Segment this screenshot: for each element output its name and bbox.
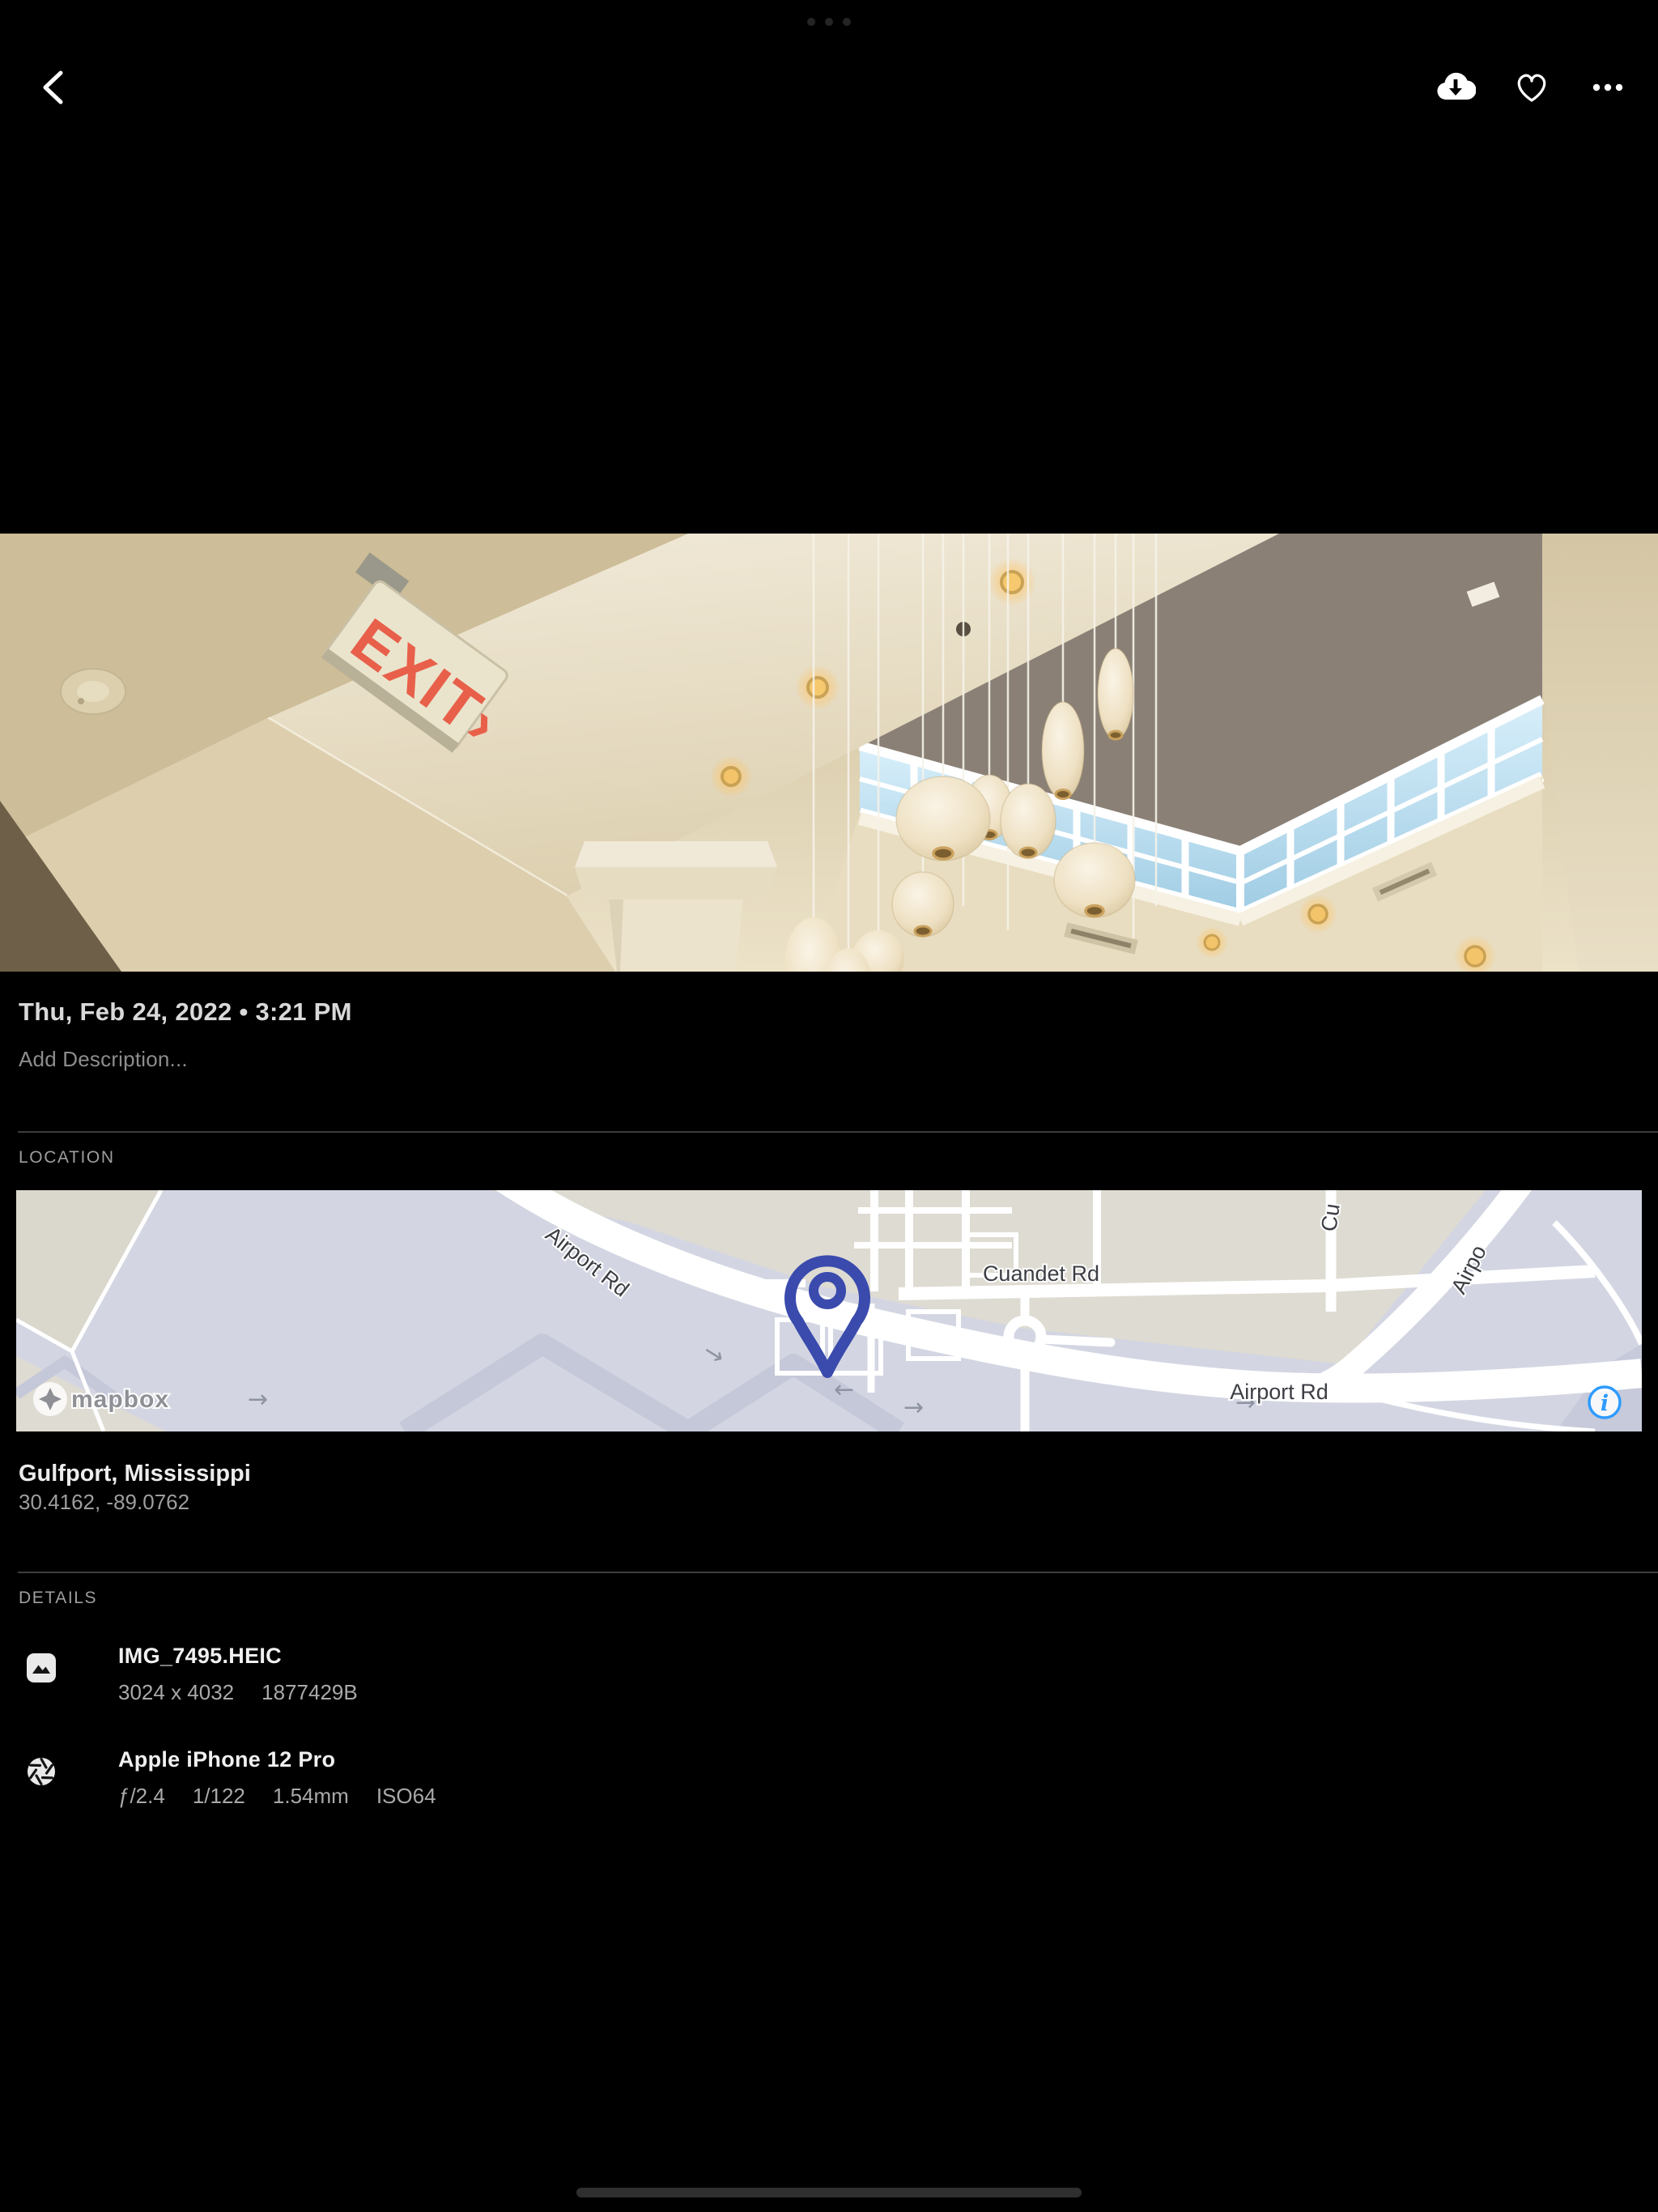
- smoke-detector: [61, 669, 125, 714]
- exif-aperture: ƒ/2.4: [118, 1784, 165, 1808]
- location-coordinates: 30.4162, -89.0762: [19, 1490, 189, 1515]
- file-dimensions: 3024 x 4032: [118, 1680, 234, 1704]
- image-file-icon: [25, 1650, 57, 1686]
- date-label[interactable]: Thu, Feb 24, 2022 • 3:21 PM: [19, 998, 352, 1027]
- svg-text:→: →: [903, 1393, 924, 1422]
- back-button[interactable]: [32, 66, 74, 108]
- location-map[interactable]: → ← → → → Airport Rd Cuandet Rd Airport …: [16, 1190, 1642, 1431]
- info-button[interactable]: i: [1589, 1387, 1620, 1418]
- svg-text:→: →: [248, 1385, 268, 1414]
- location-section-label: LOCATION: [19, 1148, 115, 1168]
- map-label-cuandet-rd: Cuandet Rd: [983, 1261, 1099, 1286]
- map-label-cross-street-partial: Cu: [1316, 1202, 1345, 1232]
- file-name: IMG_7495.HEIC: [118, 1644, 385, 1669]
- exif-iso: ISO64: [376, 1784, 436, 1808]
- file-detail-row: IMG_7495.HEIC 3024 x 40321877429B: [25, 1644, 385, 1705]
- mapbox-logo[interactable]: mapbox: [33, 1382, 169, 1416]
- chevron-left-icon: [40, 69, 67, 106]
- map-label-airport-rd-horizontal: Airport Rd: [1230, 1380, 1329, 1404]
- divider: [18, 1131, 1658, 1133]
- camera-name: Apple iPhone 12 Pro: [118, 1747, 464, 1772]
- info-icon: i: [1601, 1391, 1609, 1416]
- mapbox-wordmark: mapbox: [71, 1386, 169, 1413]
- exif-focal-length: 1.54mm: [273, 1784, 349, 1808]
- multitask-indicator[interactable]: [807, 18, 851, 26]
- aperture-icon: [25, 1754, 57, 1789]
- add-description-field[interactable]: Add Description...: [19, 1047, 188, 1072]
- ellipsis-icon: [1592, 83, 1624, 92]
- location-place: Gulfport, Mississippi: [19, 1461, 251, 1487]
- exif-shutter: 1/122: [193, 1784, 245, 1808]
- favorite-button[interactable]: [1511, 66, 1553, 108]
- photo-viewer-image[interactable]: EXIT›: [0, 534, 1658, 972]
- divider: [18, 1572, 1658, 1573]
- details-section-label: DETAILS: [19, 1589, 97, 1608]
- photo-detail-screen: EXIT›: [0, 0, 1658, 2212]
- file-size: 1877429B: [261, 1680, 358, 1704]
- home-indicator[interactable]: [576, 2188, 1082, 2197]
- camera-detail-row: Apple iPhone 12 Pro ƒ/2.41/1221.54mmISO6…: [25, 1747, 464, 1809]
- download-button[interactable]: [1435, 66, 1477, 108]
- cloud-download-icon: [1435, 71, 1476, 104]
- svg-text:←: ←: [834, 1376, 854, 1404]
- more-button[interactable]: [1587, 66, 1629, 108]
- heart-icon: [1514, 71, 1550, 104]
